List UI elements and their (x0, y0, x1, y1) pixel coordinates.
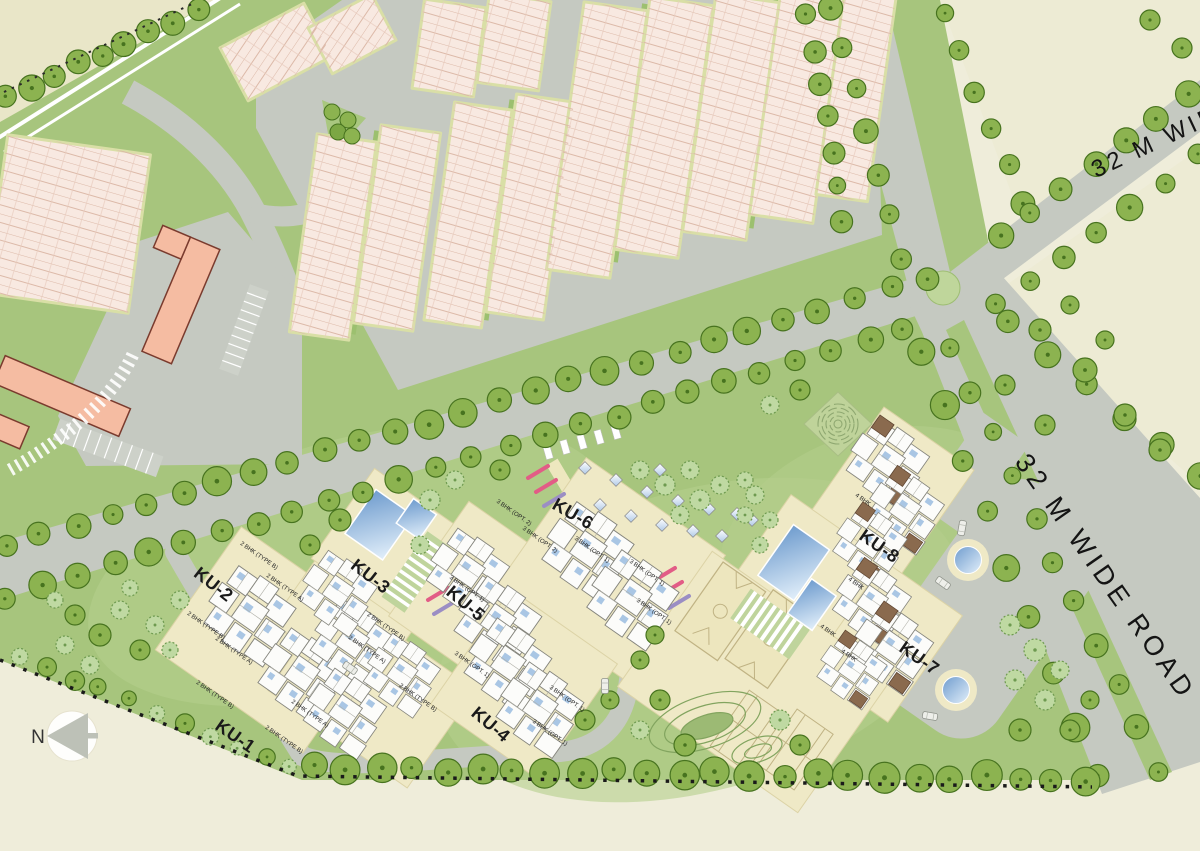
tree (1081, 691, 1099, 709)
tree (135, 538, 163, 566)
tree (690, 490, 710, 510)
tree (1061, 296, 1079, 314)
tree (882, 276, 903, 297)
tree (0, 85, 16, 107)
tree (1124, 715, 1148, 739)
round-pool (943, 677, 970, 704)
tree (446, 471, 464, 489)
tree (833, 760, 863, 790)
site-plan-map: 32 M WIDE ROAD 32 M WIDE ROAD KU-1 KU-2 … (0, 0, 1200, 851)
tree (276, 452, 298, 474)
tree (669, 342, 691, 364)
tree (1000, 615, 1020, 635)
tree (146, 616, 164, 634)
tree (259, 749, 275, 765)
tree (602, 758, 625, 781)
tree (67, 514, 91, 538)
tree (631, 651, 649, 669)
tree (1172, 38, 1192, 58)
tree (89, 678, 105, 694)
tree (761, 396, 779, 414)
tree (111, 32, 136, 57)
tree (162, 642, 178, 658)
tree (122, 691, 137, 706)
tree (1042, 553, 1062, 573)
tree (590, 357, 619, 386)
tree (818, 106, 838, 126)
compass-tail (72, 733, 98, 739)
tree (1039, 769, 1061, 791)
north-label: N (31, 727, 45, 748)
tree (804, 41, 826, 63)
tree (171, 591, 189, 609)
tree (411, 536, 429, 554)
tree (869, 762, 900, 793)
tree (867, 164, 889, 186)
tree (844, 288, 865, 309)
tree (1109, 675, 1129, 695)
tree (941, 339, 959, 357)
tree (173, 481, 197, 505)
tree (11, 648, 27, 664)
tree (674, 734, 696, 756)
tree (161, 11, 185, 35)
tree (0, 535, 17, 556)
tree (1024, 639, 1046, 661)
tree (829, 177, 846, 194)
tree (530, 758, 560, 788)
tree (1017, 606, 1040, 629)
tree (27, 522, 50, 545)
tree (746, 486, 764, 504)
tree (832, 38, 852, 58)
tree (1073, 358, 1097, 382)
tree (533, 422, 558, 447)
tree (880, 205, 899, 224)
tree (748, 363, 769, 384)
tree (906, 764, 934, 792)
tree (795, 4, 815, 24)
tree (1035, 415, 1055, 435)
tree (985, 423, 1002, 440)
tree (176, 714, 195, 733)
tree (122, 580, 138, 596)
tree (401, 757, 423, 779)
tree (1021, 272, 1040, 291)
tree (38, 658, 57, 677)
tree (1084, 634, 1108, 658)
tree (1064, 591, 1084, 611)
tree (111, 601, 129, 619)
tree (993, 555, 1020, 582)
tree (282, 759, 296, 773)
tree (972, 760, 1003, 791)
tree (978, 501, 998, 521)
tree (1176, 81, 1200, 107)
tree (982, 119, 1001, 138)
tree (240, 459, 267, 486)
tree (353, 482, 373, 502)
tree (92, 46, 113, 67)
tree (188, 0, 210, 20)
tree (711, 476, 729, 494)
tree (952, 451, 973, 472)
tree (1096, 331, 1114, 349)
tree (1149, 763, 1168, 782)
tree (936, 766, 962, 792)
tree (1005, 670, 1025, 690)
tree (772, 308, 794, 330)
tree (964, 82, 984, 102)
tree (908, 338, 935, 365)
tree (655, 475, 675, 495)
tree (701, 326, 727, 352)
tree (449, 399, 478, 428)
tree (712, 369, 737, 394)
tree (56, 636, 74, 654)
round-pool (955, 547, 982, 574)
tree (281, 501, 302, 522)
tree (1156, 174, 1175, 193)
tree (415, 410, 444, 439)
tree (247, 513, 270, 536)
tree (89, 624, 111, 646)
tree (1035, 690, 1055, 710)
tree (1035, 342, 1061, 368)
tree (130, 640, 150, 660)
tree (737, 472, 753, 488)
tree (930, 391, 959, 420)
tree (426, 457, 446, 477)
tree (858, 327, 883, 352)
tree (790, 735, 810, 755)
car (602, 679, 609, 694)
tree (1000, 155, 1020, 175)
tree (818, 0, 842, 20)
tree (891, 249, 911, 269)
tree (137, 20, 160, 43)
tree (569, 413, 591, 435)
tree (671, 506, 689, 524)
tree (785, 351, 805, 371)
tree (1060, 720, 1080, 740)
tree (329, 509, 351, 531)
tree (641, 390, 664, 413)
tree (790, 380, 810, 400)
tree (490, 460, 510, 480)
tree (65, 671, 84, 690)
tree (171, 530, 195, 554)
tree (81, 656, 99, 674)
tree (820, 340, 842, 362)
tree (631, 721, 649, 739)
tree (989, 223, 1014, 248)
tree (330, 755, 360, 785)
tree (460, 447, 481, 468)
tree (997, 310, 1019, 332)
tree (1149, 439, 1171, 461)
tree (420, 490, 440, 510)
tree (1049, 178, 1072, 201)
tree (1051, 661, 1069, 679)
tree (936, 5, 953, 22)
tree (892, 319, 913, 340)
tree (575, 710, 595, 730)
tree (737, 507, 753, 523)
tree (752, 537, 768, 553)
tree (300, 535, 320, 555)
tree (1114, 404, 1136, 426)
tree (995, 375, 1015, 395)
site-plan-canvas: 32 M WIDE ROAD 32 M WIDE ROAD KU-1 KU-2 … (0, 0, 1200, 851)
tree (676, 380, 699, 403)
tree (629, 351, 653, 375)
tree (681, 461, 699, 479)
tree (318, 490, 339, 511)
tree (43, 65, 65, 87)
tree (1117, 194, 1143, 220)
tree (959, 382, 981, 404)
tree (809, 73, 831, 95)
tree (733, 317, 760, 344)
tree (1086, 223, 1106, 243)
tree (1071, 767, 1100, 796)
tree (65, 563, 90, 588)
tree (608, 406, 631, 429)
tree (916, 268, 939, 291)
tree (1009, 719, 1031, 741)
tree (487, 388, 511, 412)
tree (66, 50, 90, 74)
tree (103, 505, 123, 525)
tree (823, 142, 845, 164)
tree (646, 626, 664, 644)
tree (302, 752, 328, 778)
tree (555, 366, 580, 391)
tree (435, 759, 462, 786)
tree (762, 512, 778, 528)
tree (1020, 203, 1039, 222)
tree (734, 761, 764, 791)
tree (47, 592, 63, 608)
tree (830, 211, 852, 233)
tree (1053, 246, 1075, 268)
tree (650, 690, 670, 710)
tree (1140, 10, 1160, 30)
tree (385, 466, 412, 493)
tree (383, 419, 408, 444)
tree (847, 79, 865, 97)
tree (313, 438, 337, 462)
tree (104, 551, 128, 575)
tree (65, 605, 85, 625)
tree (348, 429, 370, 451)
tree (949, 41, 968, 60)
tree (986, 294, 1005, 313)
tree (1029, 319, 1051, 341)
tree (670, 760, 699, 789)
tree (136, 494, 157, 515)
tree (19, 75, 45, 101)
tree (202, 467, 231, 496)
tree (522, 377, 549, 404)
tree (211, 520, 233, 542)
tree (568, 759, 598, 789)
tree (0, 588, 15, 609)
tree (854, 119, 878, 143)
tree (805, 299, 830, 324)
tree (770, 710, 790, 730)
tree (501, 435, 521, 455)
tree (631, 461, 649, 479)
